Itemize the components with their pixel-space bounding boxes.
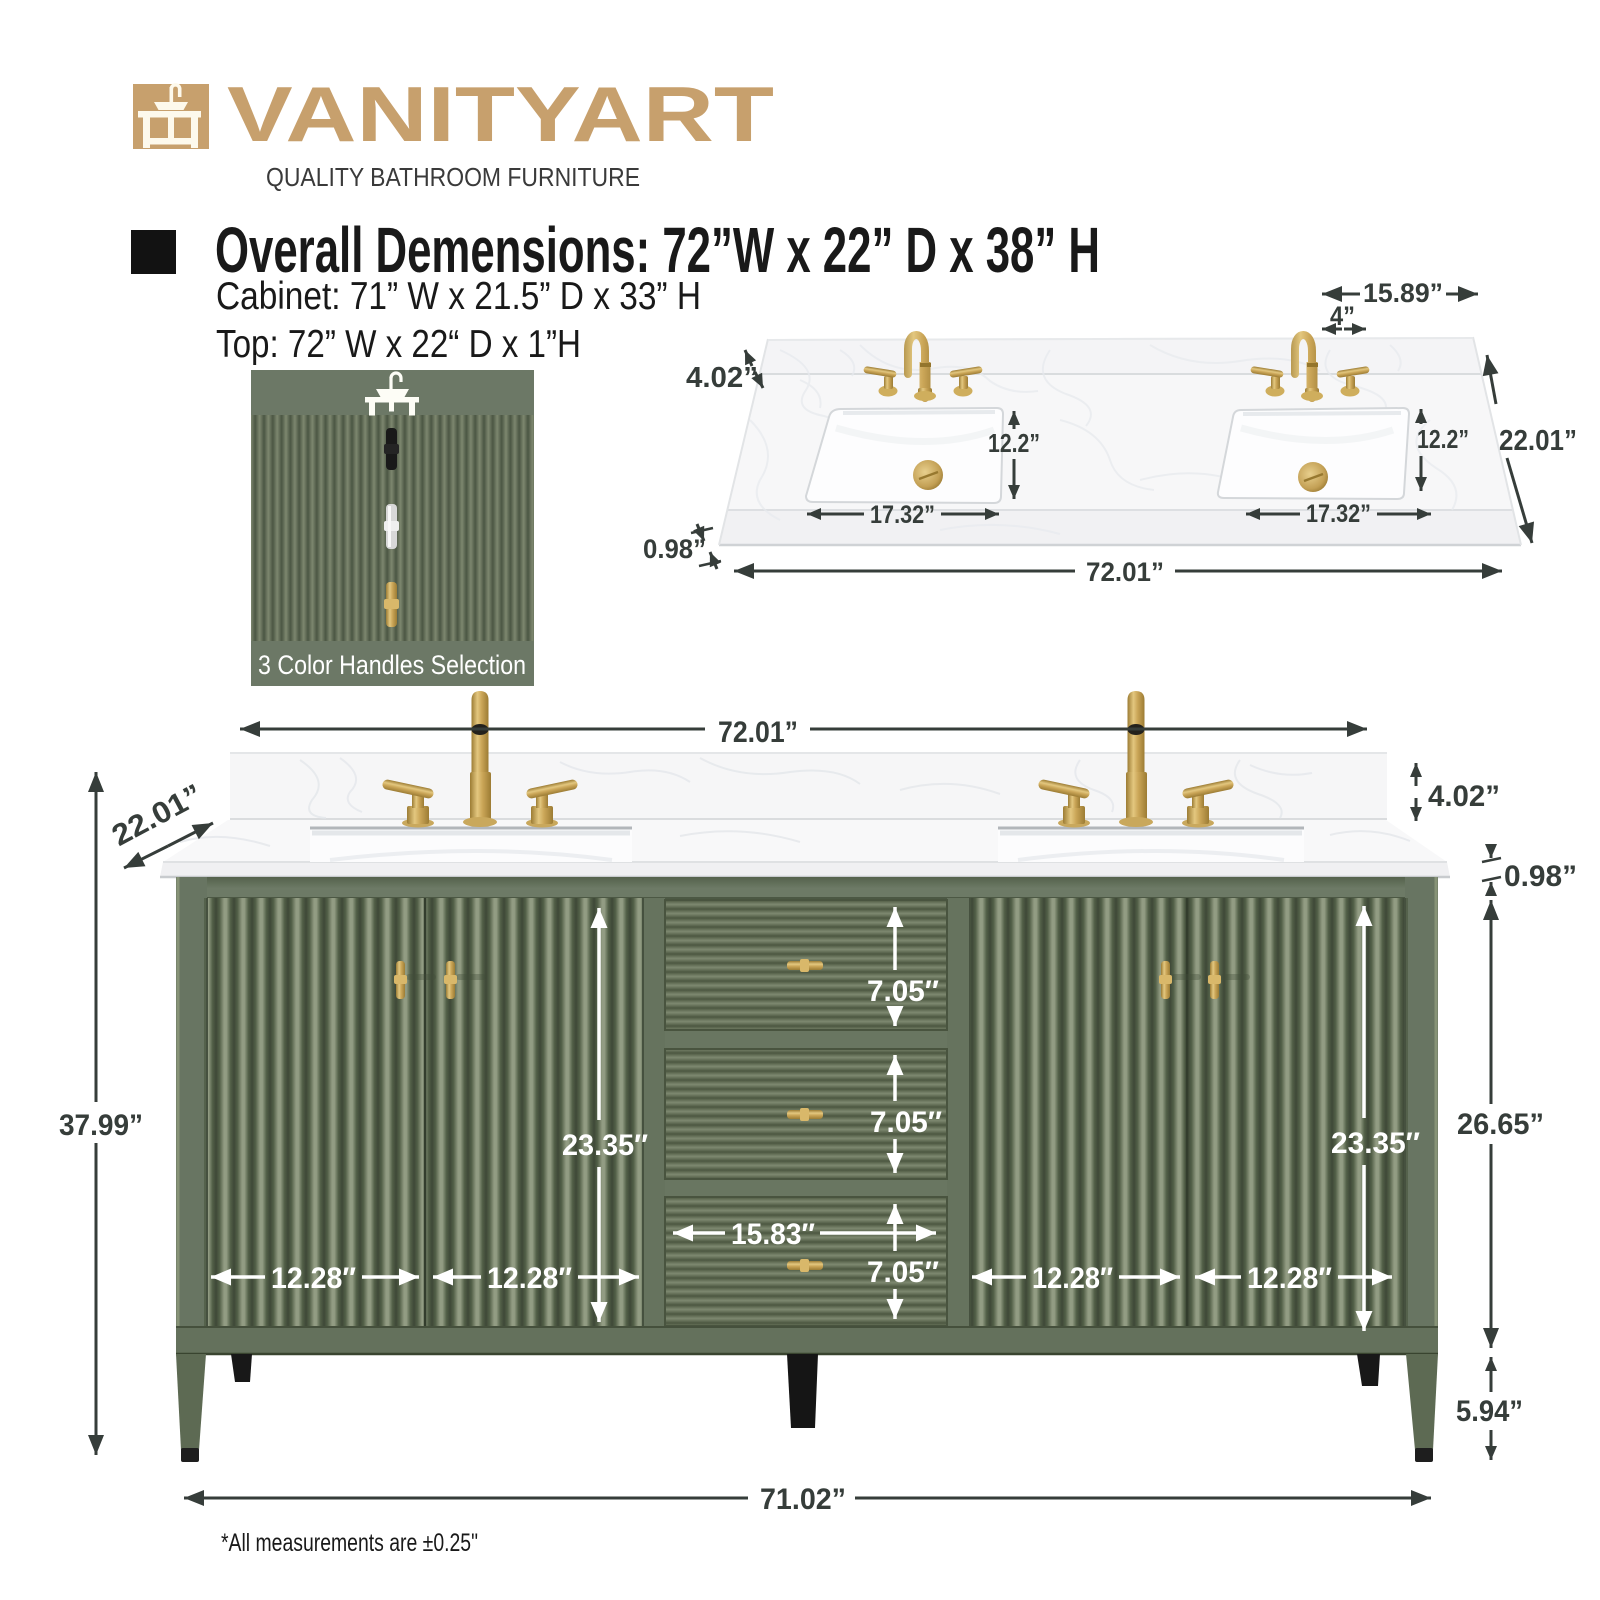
svg-text:15.83′′: 15.83′′ bbox=[731, 1218, 815, 1251]
svg-text:3 Color Handles Selection: 3 Color Handles Selection bbox=[258, 650, 526, 680]
svg-text:4”: 4” bbox=[1330, 301, 1355, 331]
svg-text:Cabinet: 71” W x 21.5” D x 33”: Cabinet: 71” W x 21.5” D x 33” H bbox=[216, 275, 701, 318]
svg-text:17.32”: 17.32” bbox=[1306, 500, 1371, 528]
svg-text:7.05′′: 7.05′′ bbox=[867, 975, 939, 1008]
svg-text:12.28′′: 12.28′′ bbox=[271, 1262, 356, 1295]
svg-text:Top: 72” W x 22“ D x 1”H: Top: 72” W x 22“ D x 1”H bbox=[216, 323, 581, 366]
svg-text:0.98”: 0.98” bbox=[643, 534, 706, 564]
svg-text:12.2”: 12.2” bbox=[988, 428, 1040, 458]
svg-text:5.94”: 5.94” bbox=[1456, 1395, 1523, 1428]
svg-text:4.02”: 4.02” bbox=[686, 362, 758, 394]
svg-text:0.98”: 0.98” bbox=[1504, 860, 1577, 893]
svg-text:VANITYART: VANITYART bbox=[227, 70, 774, 158]
svg-text:23.35′′: 23.35′′ bbox=[1331, 1127, 1420, 1160]
svg-text:12.28′′: 12.28′′ bbox=[487, 1262, 572, 1295]
svg-text:72.01”: 72.01” bbox=[1086, 557, 1164, 587]
svg-text:12.2”: 12.2” bbox=[1417, 424, 1469, 454]
svg-text:7.05′′: 7.05′′ bbox=[867, 1256, 939, 1289]
svg-text:7.05′′: 7.05′′ bbox=[870, 1106, 942, 1139]
svg-text:23.35′′: 23.35′′ bbox=[562, 1129, 648, 1162]
svg-text:26.65”: 26.65” bbox=[1457, 1108, 1544, 1141]
svg-text:17.32”: 17.32” bbox=[870, 501, 935, 529]
svg-text:12.28′′: 12.28′′ bbox=[1247, 1262, 1332, 1295]
svg-text:12.28′′: 12.28′′ bbox=[1032, 1262, 1113, 1295]
svg-text:QUALITY BATHROOM FURNITURE: QUALITY BATHROOM FURNITURE bbox=[266, 162, 640, 192]
svg-text:72.01”: 72.01” bbox=[718, 716, 798, 749]
svg-text:22.01”: 22.01” bbox=[1499, 425, 1577, 457]
svg-text:71.02”: 71.02” bbox=[760, 1483, 846, 1516]
svg-text:37.99”: 37.99” bbox=[59, 1109, 143, 1142]
svg-text:*All measurements are ±0.25": *All measurements are ±0.25" bbox=[221, 1529, 478, 1557]
svg-text:15.89”: 15.89” bbox=[1363, 278, 1443, 308]
svg-text:4.02”: 4.02” bbox=[1428, 780, 1500, 813]
